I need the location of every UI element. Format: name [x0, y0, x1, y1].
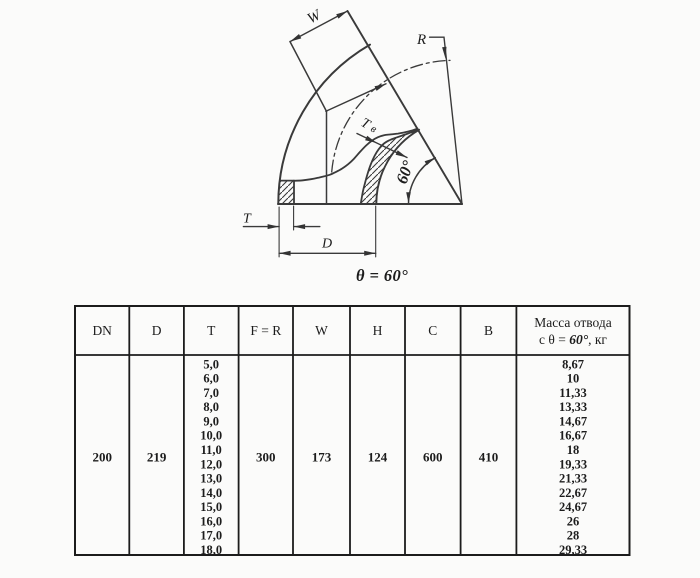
svg-text:DN: DN [92, 323, 112, 338]
svg-text:B: B [484, 323, 493, 338]
svg-text:18: 18 [567, 443, 580, 457]
svg-text:22,67: 22,67 [559, 486, 587, 500]
svg-text:H: H [373, 323, 383, 338]
svg-text:8,67: 8,67 [562, 357, 584, 371]
svg-text:T: T [207, 323, 216, 338]
svg-text:13,0: 13,0 [200, 472, 222, 486]
svg-text:18,0: 18,0 [200, 543, 222, 557]
svg-text:24,67: 24,67 [559, 500, 587, 514]
svg-text:29,33: 29,33 [559, 543, 587, 557]
svg-text:11,33: 11,33 [559, 386, 586, 400]
svg-text:6,0: 6,0 [203, 372, 219, 386]
svg-text:7,0: 7,0 [203, 386, 219, 400]
svg-text:15,0: 15,0 [200, 500, 222, 514]
svg-text:θ = 60°: θ = 60° [356, 266, 408, 285]
svg-text:F = R: F = R [250, 323, 281, 338]
svg-text:21,33: 21,33 [559, 472, 587, 486]
svg-text:5,0: 5,0 [203, 357, 219, 371]
svg-text:124: 124 [368, 450, 388, 465]
svg-text:219: 219 [147, 450, 167, 465]
svg-text:26: 26 [567, 514, 580, 528]
svg-text:173: 173 [312, 450, 332, 465]
svg-text:16,67: 16,67 [559, 429, 587, 443]
svg-text:200: 200 [92, 450, 112, 465]
svg-text:8,0: 8,0 [203, 400, 219, 414]
svg-text:10,0: 10,0 [200, 429, 222, 443]
svg-text:T: T [243, 212, 252, 227]
svg-text:R: R [416, 32, 426, 48]
svg-text:19,33: 19,33 [559, 457, 587, 471]
svg-text:C: C [428, 323, 437, 338]
svg-text:в: в [368, 123, 378, 136]
svg-text:D: D [321, 237, 332, 252]
svg-text:16,0: 16,0 [200, 514, 222, 528]
svg-text:17,0: 17,0 [200, 529, 222, 543]
svg-text:13,33: 13,33 [559, 400, 587, 414]
svg-text:10: 10 [567, 372, 580, 386]
svg-text:с θ = 60°, кг: с θ = 60°, кг [539, 332, 607, 347]
svg-text:11,0: 11,0 [201, 443, 222, 457]
svg-text:12,0: 12,0 [200, 457, 222, 471]
svg-text:14,0: 14,0 [200, 486, 222, 500]
svg-text:300: 300 [256, 450, 276, 465]
svg-text:W: W [315, 323, 328, 338]
svg-text:28: 28 [567, 529, 580, 543]
svg-text:600: 600 [423, 450, 443, 465]
svg-text:Масса отвода: Масса отвода [534, 315, 612, 330]
svg-text:410: 410 [479, 450, 499, 465]
svg-text:9,0: 9,0 [203, 414, 219, 428]
svg-text:14,67: 14,67 [559, 414, 587, 428]
svg-text:D: D [152, 323, 162, 338]
